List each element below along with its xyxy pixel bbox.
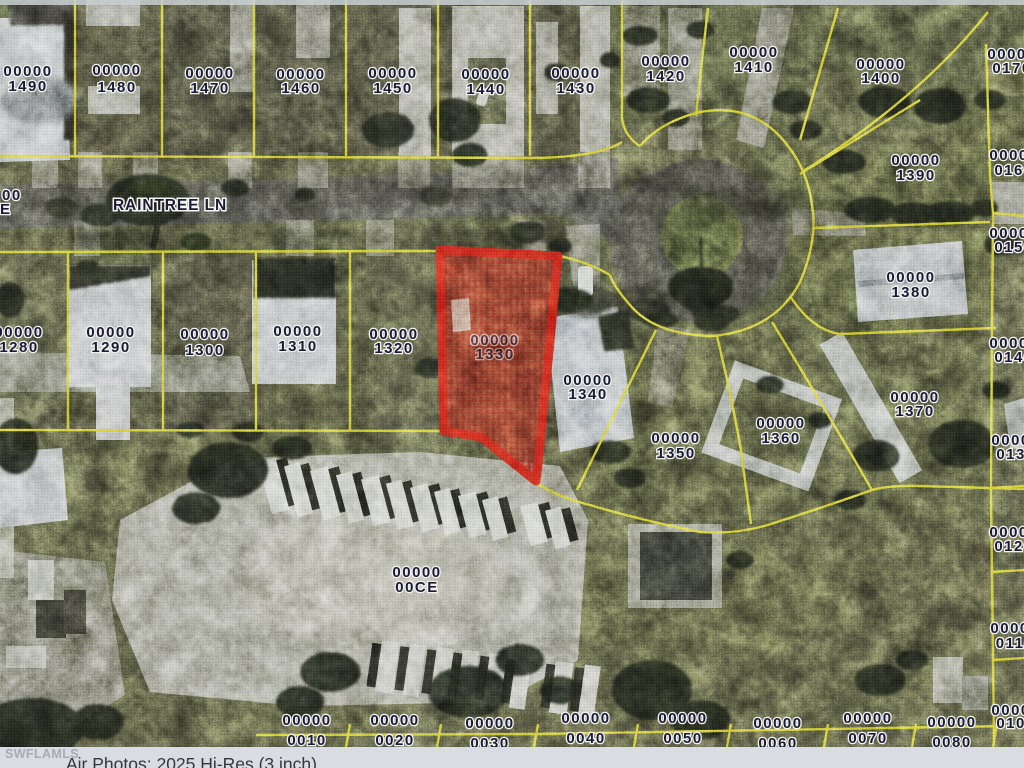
svg-text:00000: 00000 (282, 712, 331, 729)
svg-text:00000: 00000 (370, 712, 419, 729)
svg-text:00000: 00000 (465, 715, 514, 732)
svg-text:1370: 1370 (895, 403, 934, 420)
svg-text:RAINTREE LN: RAINTREE LN (113, 197, 227, 214)
svg-text:1490: 1490 (8, 78, 47, 95)
svg-text:1440: 1440 (466, 81, 505, 98)
svg-text:00000: 00000 (927, 714, 976, 731)
svg-text:0120: 0120 (994, 538, 1024, 555)
svg-text:00000: 00000 (561, 710, 610, 727)
svg-text:00000: 00000 (753, 715, 802, 732)
svg-text:1350: 1350 (656, 445, 695, 462)
svg-text:0110: 0110 (996, 635, 1024, 652)
svg-text:1410: 1410 (734, 59, 773, 76)
svg-text:1420: 1420 (646, 68, 685, 85)
svg-text:1470: 1470 (190, 80, 229, 97)
svg-text:Air Photos: 2025 Hi-Res (3 in: Air Photos: 2025 Hi-Res (3 inch) (66, 754, 317, 768)
svg-text:0160: 0160 (994, 162, 1024, 179)
svg-text:0100: 0100 (996, 715, 1024, 732)
svg-text:0050: 0050 (663, 730, 702, 747)
svg-text:1430: 1430 (556, 80, 595, 97)
svg-text:1320: 1320 (374, 340, 413, 357)
svg-text:00000: 00000 (180, 326, 229, 343)
svg-text:1390: 1390 (896, 167, 935, 184)
svg-text:0020: 0020 (375, 732, 414, 749)
svg-text:00000: 00000 (92, 62, 141, 79)
svg-text:0070: 0070 (848, 730, 887, 747)
svg-text:1380: 1380 (891, 284, 930, 301)
svg-text:E: E (0, 201, 12, 218)
svg-text:0170: 0170 (992, 60, 1024, 77)
svg-text:0130: 0130 (996, 446, 1024, 463)
svg-text:00CE: 00CE (395, 579, 439, 596)
svg-text:1450: 1450 (373, 80, 412, 97)
svg-text:1340: 1340 (568, 386, 607, 403)
svg-text:1400: 1400 (861, 70, 900, 87)
svg-text:0010: 0010 (287, 732, 326, 749)
svg-text:00000: 00000 (843, 710, 892, 727)
svg-text:1360: 1360 (761, 430, 800, 447)
svg-text:0040: 0040 (566, 730, 605, 747)
svg-text:1280: 1280 (0, 339, 39, 356)
svg-text:00000: 00000 (658, 710, 707, 727)
svg-text:1300: 1300 (185, 342, 224, 359)
svg-text:0150: 0150 (994, 239, 1024, 256)
svg-text:0140: 0140 (994, 349, 1024, 366)
svg-text:1460: 1460 (281, 80, 320, 97)
svg-text:1290: 1290 (91, 339, 130, 356)
svg-text:1480: 1480 (97, 79, 136, 96)
svg-text:1310: 1310 (278, 338, 317, 355)
